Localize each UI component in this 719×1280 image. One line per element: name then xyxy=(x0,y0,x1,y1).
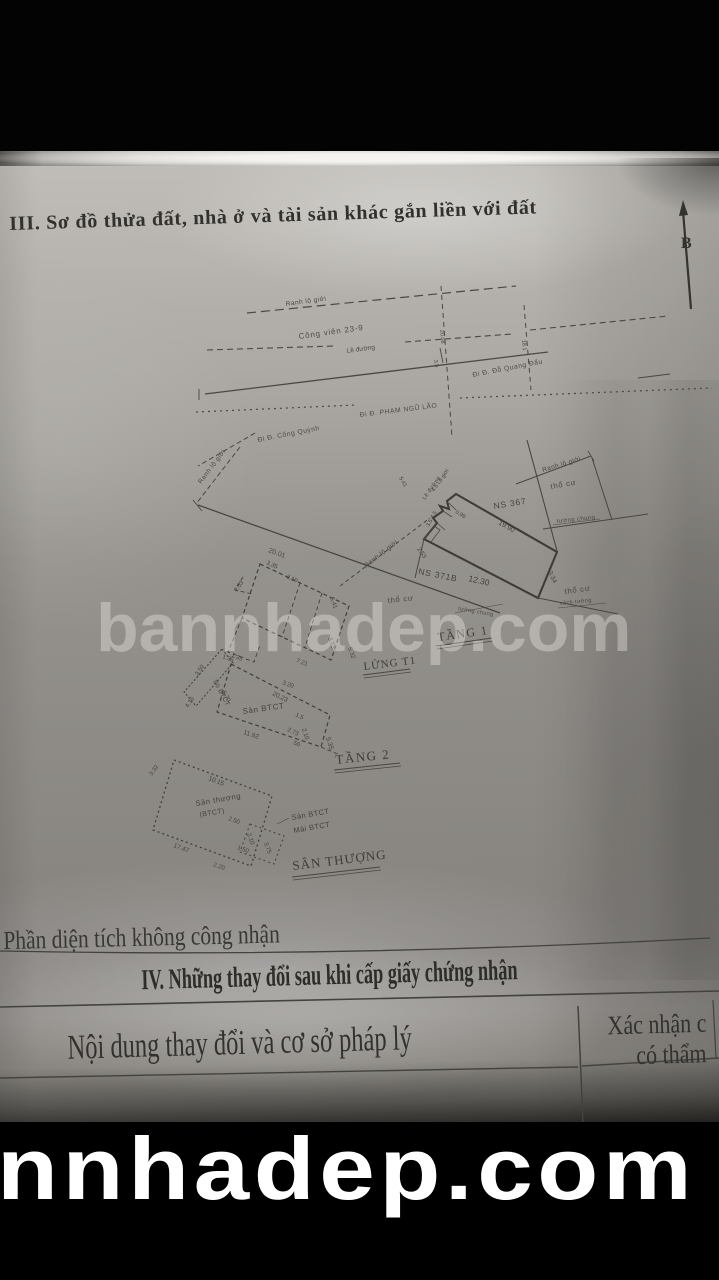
svg-text:50: 50 xyxy=(292,740,301,749)
svg-text:Đi Đ. PHẠM NGŨ LÃO: Đi Đ. PHẠM NGŨ LÃO xyxy=(359,401,438,419)
svg-text:SÂN THƯỢNG: SÂN THƯỢNG xyxy=(292,847,388,873)
svg-text:5.35: 5.35 xyxy=(324,736,335,751)
svg-text:2.73: 2.73 xyxy=(286,727,300,738)
svg-text:2.20: 2.20 xyxy=(212,862,226,872)
svg-text:Sân thượng: Sân thượng xyxy=(195,791,242,808)
svg-text:3.35: 3.35 xyxy=(265,560,279,571)
svg-text:Lề đường: Lề đường xyxy=(346,342,376,355)
svg-text:3.10: 3.10 xyxy=(285,574,299,585)
svg-text:tường chung: tường chung xyxy=(557,515,596,525)
svg-text:TẦNG 2: TẦNG 2 xyxy=(335,746,391,767)
svg-text:3.34: 3.34 xyxy=(546,570,558,585)
svg-text:4.15: 4.15 xyxy=(185,695,197,709)
svg-text:20.08: 20.08 xyxy=(438,330,445,344)
svg-text:11.92: 11.92 xyxy=(242,729,260,741)
svg-text:17.47: 17.47 xyxy=(172,842,190,855)
svg-text:Ranh lộ giới: Ranh lộ giới xyxy=(542,456,582,474)
svg-text:Mái BTCT: Mái BTCT xyxy=(293,820,331,835)
svg-text:Công viên 23-9: Công viên 23-9 xyxy=(298,323,364,341)
svg-text:3.5 4.5: 3.5 4.5 xyxy=(425,510,438,528)
svg-text:2.50: 2.50 xyxy=(227,816,241,826)
svg-text:1.50: 1.50 xyxy=(236,845,250,855)
svg-text:NS 367: NS 367 xyxy=(493,496,527,511)
svg-text:20.01: 20.01 xyxy=(267,547,286,560)
svg-text:Đi Đ. Cống Quỳnh: Đi Đ. Cống Quỳnh xyxy=(257,423,321,444)
svg-text:Ranh lộ giới: Ranh lộ giới xyxy=(363,539,400,570)
svg-text:2.10: 2.10 xyxy=(245,833,255,847)
svg-text:NS 371B: NS 371B xyxy=(418,566,459,583)
svg-text:Sàn BTCT: Sàn BTCT xyxy=(242,701,285,716)
svg-text:5.41: 5.41 xyxy=(397,476,408,488)
svg-text:B: B xyxy=(681,235,692,252)
svg-text:(BTCT): (BTCT) xyxy=(199,808,225,819)
svg-text:1.5: 1.5 xyxy=(294,712,305,721)
svg-text:3.32: 3.32 xyxy=(149,764,161,778)
svg-text:Ranh lộ giới: Ranh lộ giới xyxy=(197,448,227,485)
svg-text:3.20: 3.20 xyxy=(281,680,295,690)
svg-text:12.30: 12.30 xyxy=(468,573,491,588)
svg-text:0.99: 0.99 xyxy=(454,510,466,521)
svg-text:2.10: 2.10 xyxy=(300,728,310,742)
svg-text:thổ cư: thổ cư xyxy=(550,478,577,491)
svg-text:3.75: 3.75 xyxy=(262,842,272,856)
svg-text:18.1: 18.1 xyxy=(520,340,527,351)
